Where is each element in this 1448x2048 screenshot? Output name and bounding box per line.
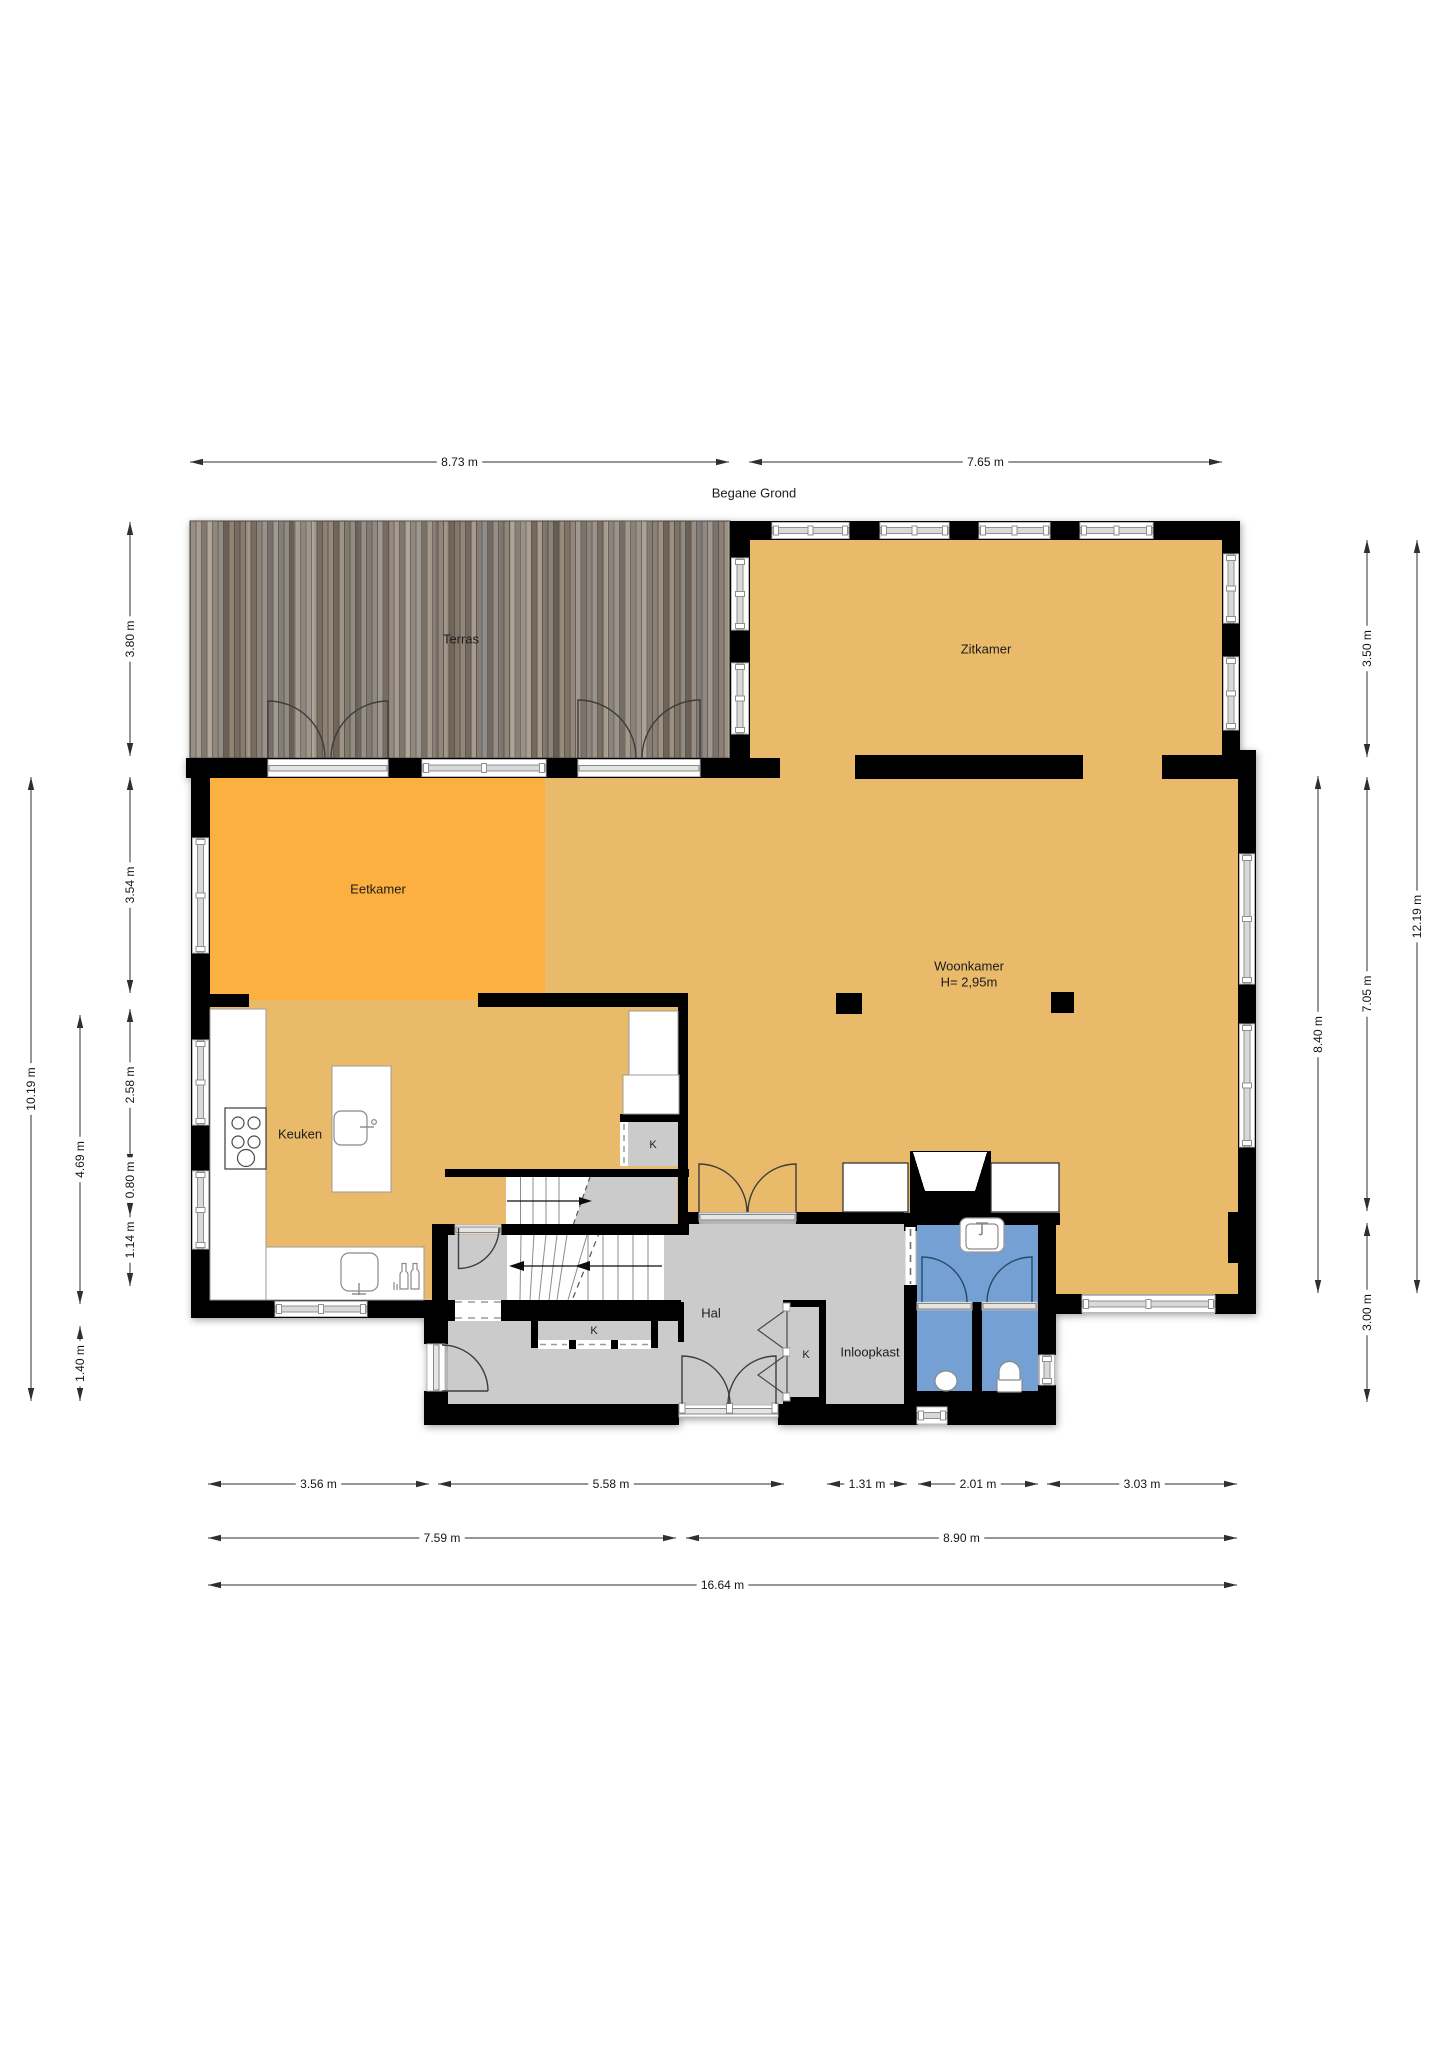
svg-text:7.05 m: 7.05 m (1360, 976, 1374, 1013)
svg-text:K: K (649, 1139, 657, 1151)
svg-text:3.03 m: 3.03 m (1124, 1477, 1161, 1491)
svg-text:3.80 m: 3.80 m (123, 621, 137, 658)
svg-text:8.40 m: 8.40 m (1311, 1016, 1325, 1053)
svg-text:3.50 m: 3.50 m (1360, 630, 1374, 667)
svg-text:Hal: Hal (701, 1306, 721, 1321)
svg-text:Terras: Terras (443, 632, 480, 647)
svg-text:5.58 m: 5.58 m (593, 1477, 630, 1491)
svg-text:7.65 m: 7.65 m (967, 455, 1004, 469)
svg-text:H= 2,95m: H= 2,95m (941, 975, 998, 990)
svg-text:10.19 m: 10.19 m (24, 1067, 38, 1110)
svg-text:Keuken: Keuken (278, 1127, 322, 1142)
svg-text:2.01 m: 2.01 m (960, 1477, 997, 1491)
svg-text:K: K (590, 1325, 598, 1337)
svg-text:Begane Grond: Begane Grond (712, 486, 797, 501)
svg-text:1.31 m: 1.31 m (849, 1477, 886, 1491)
svg-text:0.80 m: 0.80 m (123, 1162, 137, 1199)
svg-text:Zitkamer: Zitkamer (961, 642, 1012, 657)
svg-text:Eetkamer: Eetkamer (350, 882, 406, 897)
svg-text:12.19 m: 12.19 m (1410, 895, 1424, 938)
svg-text:Woonkamer: Woonkamer (934, 959, 1005, 974)
svg-text:2.58 m: 2.58 m (123, 1067, 137, 1104)
svg-text:4.69 m: 4.69 m (73, 1141, 87, 1178)
svg-text:K: K (802, 1349, 810, 1361)
svg-text:1.40 m: 1.40 m (73, 1345, 87, 1382)
svg-text:3.00 m: 3.00 m (1360, 1294, 1374, 1331)
svg-text:3.56 m: 3.56 m (300, 1477, 337, 1491)
svg-text:16.64 m: 16.64 m (701, 1578, 744, 1592)
svg-text:7.59 m: 7.59 m (424, 1531, 461, 1545)
svg-text:8.73 m: 8.73 m (441, 455, 478, 469)
svg-text:1.14 m: 1.14 m (123, 1222, 137, 1259)
svg-text:Inloopkast: Inloopkast (840, 1345, 900, 1360)
svg-text:8.90 m: 8.90 m (943, 1531, 980, 1545)
svg-text:3.54 m: 3.54 m (123, 867, 137, 904)
